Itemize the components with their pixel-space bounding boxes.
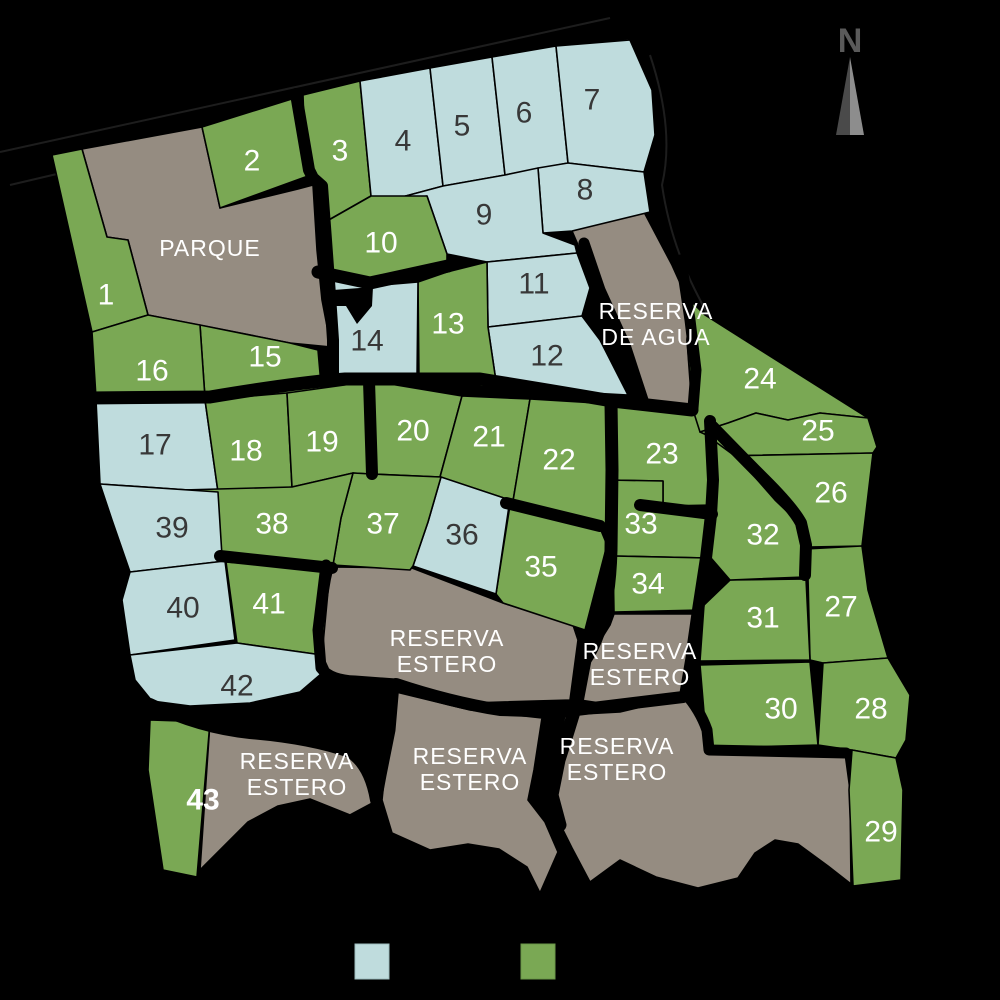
lot-label-32: 32 [746,519,779,552]
lot-label-7: 7 [584,84,601,117]
lot-label-1: 1 [98,279,115,312]
lot-label-26: 26 [814,477,847,510]
lot-label-21: 21 [472,421,505,454]
lot-label-3: 3 [332,135,349,168]
lot-label-33: 33 [624,508,657,541]
lot-label-10: 10 [364,227,397,260]
reserve-label-parque: PARQUE [159,235,260,261]
reserve-label-estero-bl-line1: RESERVA [240,748,355,774]
lot-label-14: 14 [350,325,383,358]
lot-label-20: 20 [396,415,429,448]
lot-label-42: 42 [220,670,253,703]
lot-label-29: 29 [864,816,897,849]
lot-label-4: 4 [395,125,412,158]
lot-label-24: 24 [743,363,776,396]
lot-label-17: 17 [138,429,171,462]
lot-map-page: 1 2 3 4 5 6 7 8 9 10 11 12 13 14 15 16 1… [0,0,1000,1000]
lot-label-37: 37 [366,508,399,541]
reserve-label-estero-br-line1: RESERVA [560,733,675,759]
lot-label-39: 39 [155,512,188,545]
lot-label-19: 19 [305,426,338,459]
legend-swatch-green [521,944,555,979]
reserve-label-agua-line1: RESERVA [599,298,714,324]
lot-label-18: 18 [229,435,262,468]
lot-label-41: 41 [252,588,285,621]
reserve-label-estero-right-line2: ESTERO [590,664,691,690]
lot-label-25: 25 [801,415,834,448]
lot-label-15: 15 [248,341,281,374]
lot-label-31: 31 [746,602,779,635]
reserve-label-estero-bm-line1: RESERVA [413,743,528,769]
lot-label-40: 40 [166,592,199,625]
lot-label-9: 9 [476,199,493,232]
lot-label-12: 12 [530,340,563,373]
lot-label-5: 5 [454,110,471,143]
lot-label-6: 6 [516,97,533,130]
lot-polygon-30[interactable] [700,662,818,748]
lot-label-36: 36 [445,519,478,552]
reserve-label-estero-center-line1: RESERVA [390,625,505,651]
reserve-label-estero-center-line2: ESTERO [397,651,498,677]
reserve-label-estero-right-line1: RESERVA [583,638,698,664]
lot-label-8: 8 [577,174,594,207]
lot-label-13: 13 [431,308,464,341]
lot-label-34: 34 [631,568,664,601]
reserve-label-agua-line2: DE AGUA [601,324,710,350]
site-map-svg: 1 2 3 4 5 6 7 8 9 10 11 12 13 14 15 16 1… [0,0,1000,1000]
lot-label-43: 43 [186,784,219,817]
lot-label-35: 35 [524,551,557,584]
lot-label-30: 30 [764,693,797,726]
lot-label-38: 38 [255,508,288,541]
reserve-label-estero-bl-line2: ESTERO [247,774,348,800]
lot-label-11: 11 [518,268,549,301]
lot-label-27: 27 [824,591,857,624]
reserve-label-estero-br-line2: ESTERO [567,759,668,785]
lot-label-28: 28 [854,693,887,726]
north-label: N [838,22,863,60]
lot-label-2: 2 [244,145,261,178]
reserve-label-estero-bm-line2: ESTERO [420,769,521,795]
lot-label-23: 23 [645,438,678,471]
lot-label-16: 16 [135,355,168,388]
lot-label-22: 22 [542,444,575,477]
legend-swatch-blue [355,944,389,979]
